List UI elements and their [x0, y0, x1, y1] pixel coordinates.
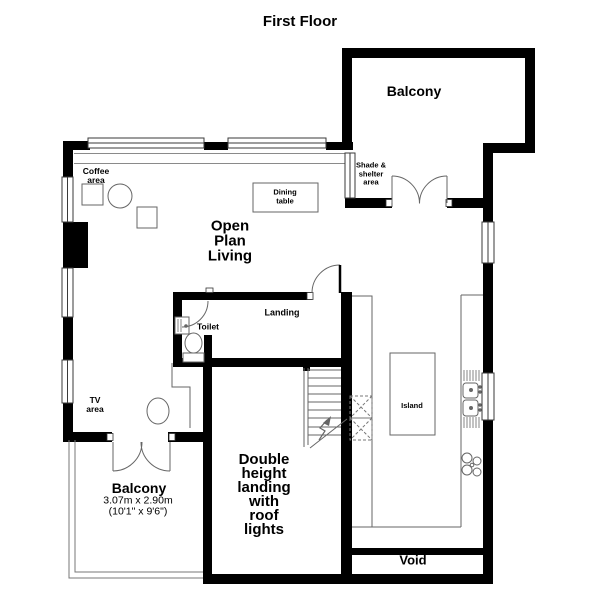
french-doors-balcony: [113, 442, 170, 471]
wc-cistern: [183, 353, 204, 362]
room-label-coffee-area: Coffee area: [83, 167, 109, 185]
label-dining-table: Dining table: [273, 189, 296, 206]
label-void: Void: [399, 554, 426, 567]
room-label-shade-shelter: Shade & shelter area: [356, 161, 386, 187]
roof-light-hatch: [350, 396, 372, 440]
hob: [462, 453, 481, 476]
stairs: [304, 368, 347, 448]
window: [88, 138, 204, 148]
beam-lines: [74, 154, 345, 164]
window: [345, 153, 355, 198]
room-label-tv-area: TV area: [86, 396, 104, 414]
sink-unit: [463, 370, 481, 428]
window: [482, 373, 494, 420]
window: [62, 177, 73, 222]
french-doors-shade: [392, 176, 447, 204]
window: [482, 222, 494, 263]
coffee-round-table: [108, 184, 132, 208]
room-label-landing: Landing: [265, 309, 300, 318]
window: [228, 138, 326, 148]
kitchen-island: [390, 353, 435, 435]
coffee-table: [82, 184, 103, 205]
landing-door: [312, 265, 340, 293]
room-label-open-plan-living: Open Plan Living: [208, 219, 252, 264]
coffee-furniture: [82, 184, 157, 228]
room-label-balcony-bottom: Balcony: [112, 481, 166, 495]
room-label-toilet: Toilet: [197, 323, 219, 332]
wc-pan: [185, 333, 202, 353]
floor-edge: [172, 363, 190, 428]
coffee-table: [137, 207, 157, 228]
room-label-balcony-top: Balcony: [387, 84, 441, 98]
window: [62, 360, 73, 403]
balcony-dimensions-imperial: (10'1" x 9'6"): [109, 507, 168, 518]
chair: [147, 398, 169, 424]
label-island: Island: [401, 402, 423, 411]
window: [62, 268, 73, 317]
floor-plan: First Floor Balcony Shade & shelter area…: [0, 0, 600, 600]
page-title: First Floor: [263, 14, 337, 30]
plan-linework: [0, 0, 600, 600]
room-label-double-height-landing: Double height landing with roof lights: [237, 453, 290, 537]
